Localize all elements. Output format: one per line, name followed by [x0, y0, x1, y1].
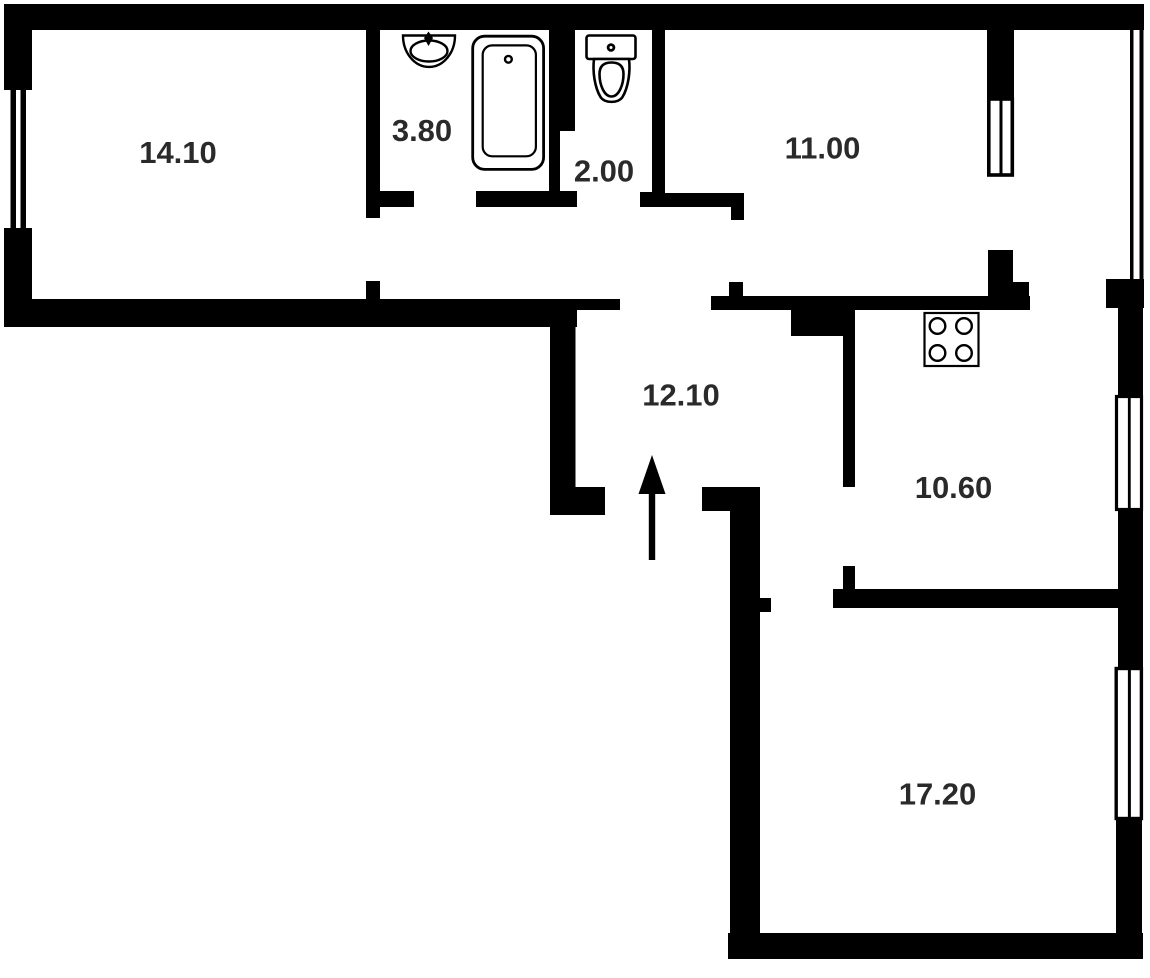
- svg-text:11.00: 11.00: [785, 131, 861, 166]
- svg-text:12.10: 12.10: [642, 377, 720, 412]
- svg-text:17.20: 17.20: [899, 776, 977, 811]
- svg-text:14.10: 14.10: [139, 135, 217, 170]
- svg-text:2.00: 2.00: [574, 154, 634, 189]
- svg-text:3.80: 3.80: [392, 113, 452, 148]
- svg-text:10.60: 10.60: [915, 470, 993, 505]
